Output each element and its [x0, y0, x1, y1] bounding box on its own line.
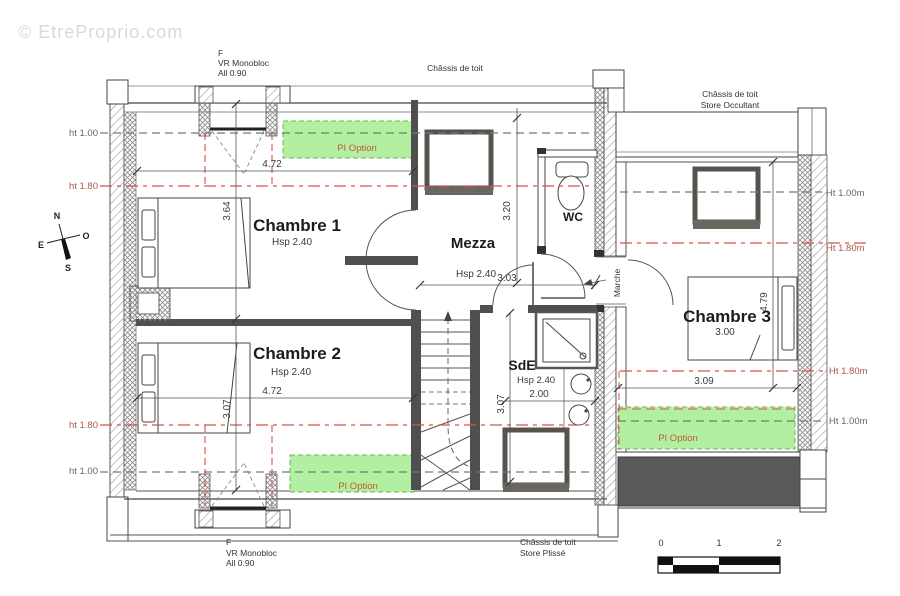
window-bottom-label-2: VR Monobloc: [226, 548, 278, 558]
ceiling-chambre1: Hsp 2.40: [272, 237, 312, 248]
height-right-100-top: Ht 1.00m: [826, 188, 865, 199]
dim-mezza-depth: 3.20: [502, 201, 513, 221]
scale-tick-1: 1: [716, 538, 721, 548]
width-chambre3: 3.00: [715, 327, 735, 338]
pi-option-label-bottom: PI Option: [338, 481, 378, 492]
ceiling-mezza: Hsp 2.40: [456, 269, 496, 280]
watermark: © EtreProprio.com: [18, 22, 183, 42]
door-wc: [541, 254, 585, 298]
dim-chambre3-depth: 4.79: [759, 292, 770, 312]
height-right-180-top: Ht 1.80m: [826, 243, 865, 254]
shower: [536, 312, 597, 368]
dim-chambre2-depth: 3.07: [222, 399, 233, 419]
roof-bottom-label-1: Châssis de toit: [520, 537, 576, 547]
dim-chambre1-width: 4.72: [262, 159, 282, 170]
roof-window-bottom: [195, 463, 290, 528]
roof-right-label-2: Store Occultant: [701, 100, 760, 110]
roof-bottom-label-2: Store Plissé: [520, 548, 566, 558]
floor-plan-page: © EtreProprio.com: [0, 0, 900, 596]
room-label-chambre3: Chambre 3: [683, 307, 771, 326]
compass-west: O: [82, 231, 89, 241]
skylight-chambre3: [693, 169, 760, 229]
sinks: [564, 369, 591, 431]
dim-chambre1-depth: 3.64: [222, 201, 233, 221]
pi-option-label-right: PI Option: [658, 433, 698, 444]
compass-east: E: [38, 240, 44, 250]
ceiling-sde: Hsp 2.40: [517, 375, 555, 386]
height-right-100-bottom: Ht 1.00m: [829, 416, 868, 427]
room-label-mezza: Mezza: [451, 235, 496, 252]
compass-rose: N S E O: [38, 211, 90, 273]
scale-tick-0: 0: [658, 538, 663, 548]
bed-chambre2: [138, 343, 250, 433]
window-top-label-1: F: [218, 48, 223, 58]
height-right-180-bottom: Ht 1.80m: [829, 366, 868, 377]
window-bottom-label-1: F: [226, 537, 231, 547]
dim-sde-depth: 3.07: [496, 394, 507, 414]
dim-sde-width: 2.00: [529, 389, 549, 400]
room-label-sde: SdE: [508, 357, 535, 373]
dim-chambre3-width: 3.09: [694, 376, 714, 387]
floor-plan-drawing: © EtreProprio.com: [0, 0, 900, 596]
dim-chambre2-width: 4.72: [262, 386, 282, 397]
window-top-label-3: All 0.90: [218, 68, 247, 78]
door-chambre3: [628, 260, 673, 305]
terrace-dark-band: [618, 457, 802, 506]
bed-chambre1: [138, 198, 250, 288]
height-left-180-bottom: ht 1.80: [69, 420, 98, 431]
staircase: [421, 311, 470, 490]
height-left-100-bottom: ht 1.00: [69, 466, 98, 477]
compass-south: S: [65, 263, 71, 273]
room-label-chambre1: Chambre 1: [253, 216, 341, 235]
compass-north: N: [54, 211, 61, 221]
roof-top-label: Châssis de toit: [427, 63, 483, 73]
pi-option-zone-right: [618, 407, 795, 449]
stair-direction-arrow: [444, 311, 452, 321]
height-left-180-top: ht 1.80: [69, 181, 98, 192]
pi-option-label-top: PI Option: [337, 143, 377, 154]
ceiling-chambre2: Hsp 2.40: [271, 367, 311, 378]
marche-label: Marche: [612, 269, 622, 298]
scale-bar: 0 1 2: [658, 538, 782, 573]
dim-mezza-width: 3.03: [497, 273, 517, 284]
roof-right-label-1: Châssis de toit: [702, 89, 758, 99]
scale-tick-2: 2: [776, 538, 781, 548]
window-top-label-2: VR Monobloc: [218, 58, 270, 68]
height-left-100-top: ht 1.00: [69, 128, 98, 139]
room-label-wc: WC: [563, 210, 583, 224]
window-bottom-label-3: All 0.90: [226, 558, 255, 568]
room-label-chambre2: Chambre 2: [253, 344, 341, 363]
skylight-sde: [503, 430, 569, 492]
